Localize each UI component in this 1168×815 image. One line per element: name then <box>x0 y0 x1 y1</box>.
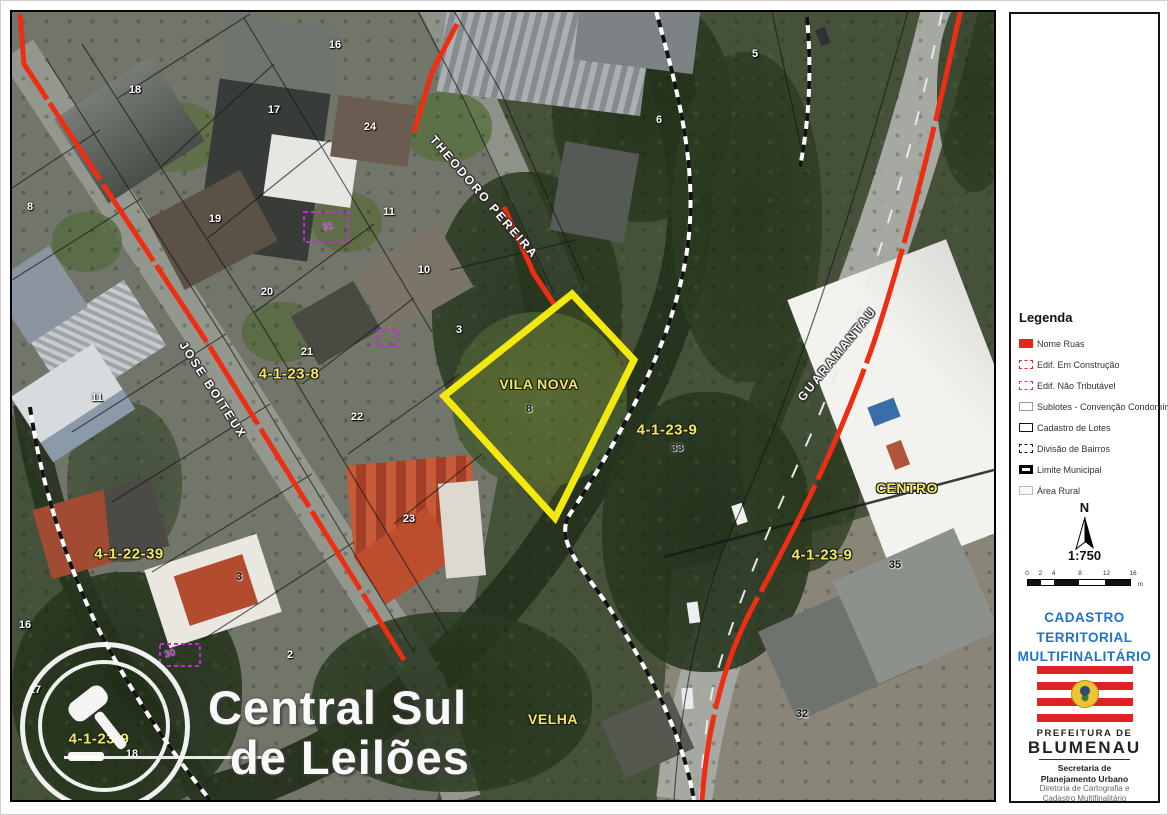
legend-item: Edif. Em Construção <box>1019 354 1156 375</box>
map-sidebar-panel: Legenda Nome RuasEdif. Em ConstruçãoEdif… <box>1009 12 1160 803</box>
legend-label: Divisão de Bairros <box>1037 444 1110 454</box>
scale-ratio: 1:750 <box>1011 548 1158 563</box>
legend-swatch <box>1019 444 1033 453</box>
house-number: 16 <box>329 39 341 51</box>
house-number: 3 <box>236 571 242 583</box>
org-directorate: Diretoria de Cartografia e Cadastro Mult… <box>1011 784 1158 804</box>
street-name-label: GUARAMANTAU <box>795 304 880 404</box>
legend-label: Edif. Não Tributável <box>1037 381 1116 391</box>
house-number: 23 <box>403 513 415 525</box>
scale-tick: 8 <box>1078 570 1082 577</box>
map-title: CADASTRO TERRITORIAL MULTIFINALITÁRIO <box>1011 608 1158 667</box>
street-name-label: THEODORO PEREIRA <box>427 133 541 261</box>
page: 1816172481911201032122231156211617188333… <box>0 0 1168 815</box>
scale-segment <box>1041 580 1054 585</box>
map-title-line2: TERRITORIAL <box>1011 628 1158 648</box>
sector-label: 4-1-23-9 <box>792 547 853 564</box>
non-taxable-number: 31 <box>321 220 334 233</box>
sector-label: 4-1-23-9 <box>69 731 130 748</box>
house-number: 22 <box>351 411 363 423</box>
scale-tick: 16 <box>1129 570 1136 577</box>
map-title-line3: MULTIFINALITÁRIO <box>1011 647 1158 667</box>
flag-emblem <box>1071 680 1099 708</box>
legend-swatch <box>1019 402 1033 411</box>
scale-bar: 02481216 m <box>1027 570 1133 586</box>
blumenau-flag <box>1037 666 1133 722</box>
scale-tick: 4 <box>1052 570 1056 577</box>
legend-label: Limite Municipal <box>1037 465 1102 475</box>
house-number: 24 <box>364 121 376 133</box>
legend-label: Sublotes - Convenção Condomínio <box>1037 402 1168 412</box>
legend-items: Nome RuasEdif. Em ConstruçãoEdif. Não Tr… <box>1019 333 1156 501</box>
house-number: 3 <box>456 324 462 336</box>
scale-segment <box>1054 580 1080 585</box>
sector-label: 4-1-22-39 <box>94 546 164 563</box>
legend-label: Nome Ruas <box>1037 339 1085 349</box>
north-label: N <box>1011 500 1158 515</box>
house-number: 18 <box>126 748 138 760</box>
org-line2: BLUMENAU <box>1011 738 1158 758</box>
legend-item: Limite Municipal <box>1019 459 1156 480</box>
house-number: 8 <box>526 403 532 415</box>
legend-item: Cadastro de Lotes <box>1019 417 1156 438</box>
scale-segment <box>1028 580 1041 585</box>
house-number: 17 <box>29 684 41 696</box>
legend-swatch <box>1019 381 1033 390</box>
house-number: 19 <box>209 213 221 225</box>
neighborhood-label: VILA NOVA <box>499 376 578 392</box>
org-dept: Secretaria de Planejamento Urbano <box>1011 763 1158 784</box>
house-number: 6 <box>656 114 662 126</box>
legend-item: Edif. Não Tributável <box>1019 375 1156 396</box>
house-number: 2 <box>287 649 293 661</box>
legend-swatch <box>1019 465 1033 474</box>
scale-tick: 12 <box>1103 570 1110 577</box>
house-number: 1 <box>351 701 357 713</box>
house-number: 5 <box>752 48 758 60</box>
legend-item: Divisão de Bairros <box>1019 438 1156 459</box>
house-number: 8 <box>27 201 33 213</box>
house-number: 33 <box>671 442 683 454</box>
legend-swatch <box>1019 360 1033 369</box>
scale-tick: 0 <box>1025 570 1029 577</box>
map-title-line1: CADASTRO <box>1011 608 1158 628</box>
scale-tick: 2 <box>1038 570 1042 577</box>
legend-label: Edif. Em Construção <box>1037 360 1120 370</box>
house-number: 35 <box>889 559 901 571</box>
legend-title: Legenda <box>1019 310 1156 325</box>
legend-item: Área Rural <box>1019 480 1156 501</box>
house-number: 16 <box>19 619 31 631</box>
house-number: 17 <box>268 104 280 116</box>
scale-segment <box>1105 580 1131 585</box>
map-labels-layer: 1816172481911201032122231156211617188333… <box>12 12 994 800</box>
house-number: 10 <box>418 264 430 276</box>
house-number: 18 <box>129 84 141 96</box>
sector-label: 4-1-23-9 <box>637 422 698 439</box>
scale-unit: m <box>1138 581 1143 588</box>
neighborhood-label: CENTRO <box>876 480 938 496</box>
non-taxable-number: 30 <box>163 647 177 661</box>
org-divider <box>1039 759 1130 760</box>
legend-label: Área Rural <box>1037 486 1080 496</box>
street-name-label: JOSE BOITEUX <box>176 339 249 441</box>
neighborhood-label: VELHA <box>528 711 578 727</box>
map-viewport: 1816172481911201032122231156211617188333… <box>10 10 996 802</box>
legend-swatch <box>1019 339 1033 348</box>
legend-item: Nome Ruas <box>1019 333 1156 354</box>
legend-swatch <box>1019 423 1033 432</box>
house-number: 11 <box>383 206 395 218</box>
legend-swatch <box>1019 486 1033 495</box>
scale-bar-segments <box>1027 579 1131 586</box>
house-number: 21 <box>301 346 313 358</box>
legend-label: Cadastro de Lotes <box>1037 423 1111 433</box>
legend: Legenda Nome RuasEdif. Em ConstruçãoEdif… <box>1019 310 1156 501</box>
scale-ticks: 02481216 <box>1027 570 1133 579</box>
legend-item: Sublotes - Convenção Condomínio <box>1019 396 1156 417</box>
house-number: 11 <box>91 392 103 404</box>
scale-segment <box>1079 580 1105 585</box>
sector-label: 4-1-23-8 <box>259 366 320 383</box>
house-number: 20 <box>261 286 273 298</box>
house-number: 32 <box>796 708 808 720</box>
